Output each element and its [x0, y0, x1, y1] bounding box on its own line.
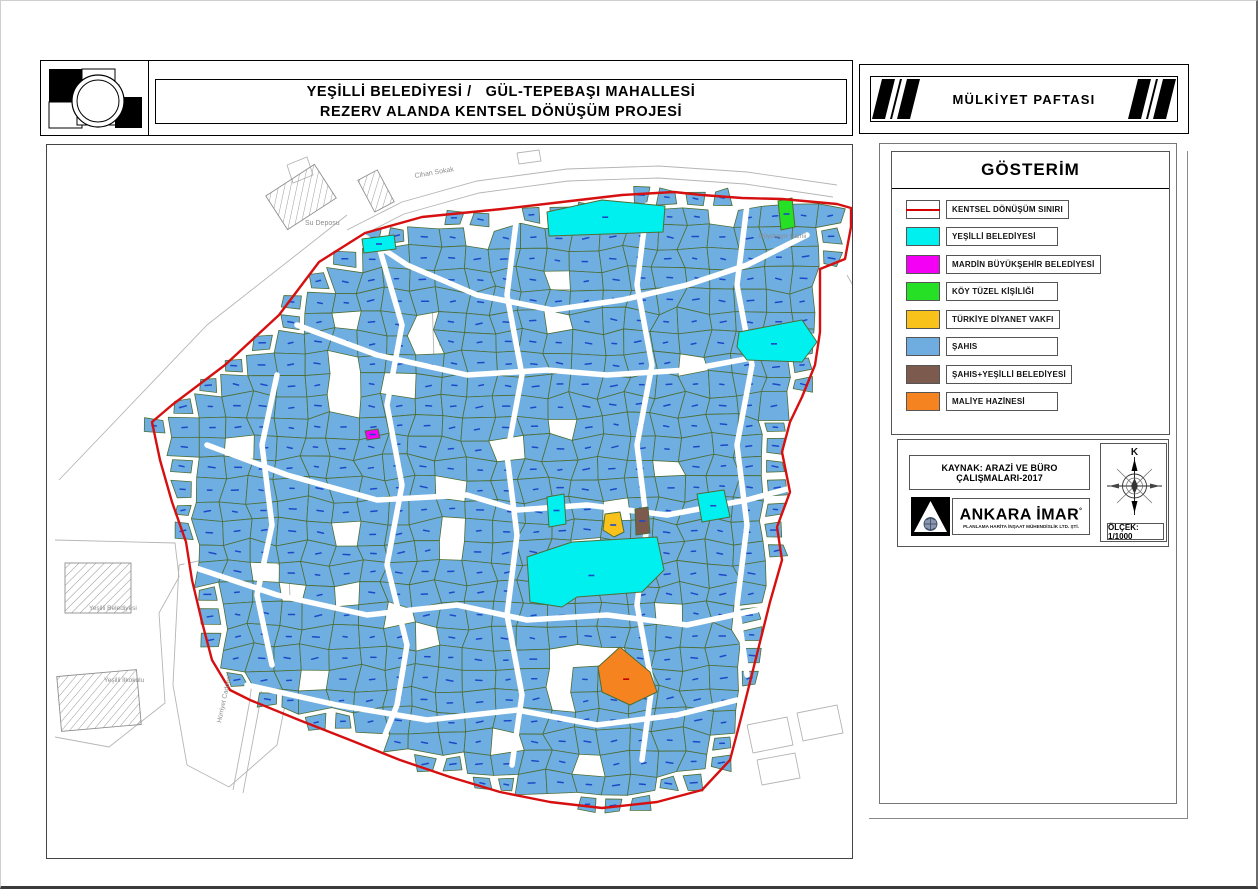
legend-item: YEŞİLLİ BELEDİYESİ: [906, 227, 1169, 247]
company-logo-icon: [911, 497, 950, 536]
source-note: KAYNAK: ARAZİ VE BÜRO ÇALIŞMALARI-2017: [910, 463, 1089, 483]
company-subtitle: PLANLAMA HARİTA İNŞAAT MÜHENDİSLİK LTD. …: [963, 524, 1079, 529]
legend-label-box: ŞAHIS+YEŞİLLİ BELEDİYESİ: [946, 365, 1072, 384]
legend-label-box: MARDİN BÜYÜKŞEHİR BELEDİYESİ: [946, 255, 1101, 274]
legend-line-swatch: [906, 200, 940, 219]
legend-item: TÜRKİYE DİYANET VAKFI: [906, 309, 1169, 329]
legend-label-box: MALİYE HAZİNESİ: [946, 392, 1058, 411]
north-scale-box: K ÖLÇEK: 1/1000: [1100, 443, 1167, 542]
legend-title: GÖSTERİM: [892, 152, 1169, 189]
legend-label: MALİYE HAZİNESİ: [952, 397, 1025, 406]
legend-color-swatch: [906, 227, 940, 246]
municipality-logo-cell: [41, 61, 149, 135]
legend-label-box: KENTSEL DÖNÜŞÜM SINIRI: [946, 200, 1069, 219]
sheet-type-title: MÜLKİYET PAFTASI: [953, 92, 1096, 107]
legend-color-swatch: [906, 337, 940, 356]
legend-label-box: KÖY TÜZEL KİŞİLİĞİ: [946, 282, 1058, 301]
legend-label-box: TÜRKİYE DİYANET VAKFI: [946, 310, 1060, 329]
map-label: Hürriyet Caddesi: [216, 675, 233, 724]
company-name: ANKARA İMAR°: [960, 504, 1083, 523]
legend-color-swatch: [906, 255, 940, 274]
legend-item: ŞAHIS: [906, 337, 1169, 357]
decorative-bars-left-icon: [877, 79, 915, 119]
parcel-cyan: [547, 200, 665, 236]
map-frame: Su DeposuCihan SokakBüyükayır CamiiYeşil…: [46, 144, 853, 859]
legend-label: ŞAHIS+YEŞİLLİ BELEDİYESİ: [952, 370, 1066, 379]
legend-item: KÖY TÜZEL KİŞİLİĞİ: [906, 282, 1169, 302]
legend-color-swatch: [906, 310, 940, 329]
legend-label-box: ŞAHIS: [946, 337, 1058, 356]
map-label: Yeşilli İlkokulu: [104, 675, 145, 684]
legend-color-swatch: [906, 282, 940, 301]
right-title-box: MÜLKİYET PAFTASI: [870, 76, 1178, 122]
map-label: Su Deposu: [305, 220, 340, 227]
map-canvas: Su DeposuCihan SokakBüyükayır CamiiYeşil…: [47, 145, 852, 858]
company-box: ANKARA İMAR° PLANLAMA HARİTA İNŞAAT MÜHE…: [952, 498, 1090, 535]
legend-label: TÜRKİYE DİYANET VAKFI: [952, 315, 1054, 324]
compass-rose-icon: K: [1102, 445, 1167, 521]
legend-label: YEŞİLLİ BELEDİYESİ: [952, 232, 1036, 241]
legend-item: MARDİN BÜYÜKŞEHİR BELEDİYESİ: [906, 254, 1169, 274]
legend-item: KENTSEL DÖNÜŞÜM SINIRI: [906, 199, 1169, 219]
scale-label: ÖLÇEK: 1/1000: [1107, 523, 1164, 540]
map-label: Yeşilli Belediyesi: [89, 605, 137, 612]
north-letter: K: [1131, 447, 1139, 458]
legend-color-swatch: [906, 392, 940, 411]
plan-sheet: YEŞİLLİ BELEDİYESİ / GÜL-TEPEBAŞI MAHALL…: [0, 0, 1258, 889]
legend-panel: GÖSTERİM KENTSEL DÖNÜŞÜM SINIRIYEŞİLLİ B…: [891, 151, 1170, 435]
legend-label: MARDİN BÜYÜKŞEHİR BELEDİYESİ: [952, 260, 1095, 269]
decorative-bars-right-icon: [1133, 79, 1171, 119]
map-label: Büyükayır Camii: [759, 233, 806, 240]
page-title-line2: REZERV ALANDA KENTSEL DÖNÜŞÜM PROJESİ: [320, 102, 682, 122]
legend-color-swatch: [906, 365, 940, 384]
legend-label: ŞAHIS: [952, 342, 977, 351]
municipality-logo-icon: [41, 61, 148, 135]
legend-item: MALİYE HAZİNESİ: [906, 392, 1169, 412]
page-title-line1: YEŞİLLİ BELEDİYESİ / GÜL-TEPEBAŞI MAHALL…: [307, 82, 696, 102]
title-box: YEŞİLLİ BELEDİYESİ / GÜL-TEPEBAŞI MAHALL…: [155, 79, 847, 124]
legend-label: KÖY TÜZEL KİŞİLİĞİ: [952, 287, 1034, 296]
legend-rows: KENTSEL DÖNÜŞÜM SINIRIYEŞİLLİ BELEDİYESİ…: [892, 189, 1169, 412]
map-label: Cihan Sokak: [414, 166, 455, 180]
legend-item: ŞAHIS+YEŞİLLİ BELEDİYESİ: [906, 364, 1169, 384]
source-note-box: KAYNAK: ARAZİ VE BÜRO ÇALIŞMALARI-2017: [909, 455, 1090, 490]
legend-label-box: YEŞİLLİ BELEDİYESİ: [946, 227, 1058, 246]
right-header-band: MÜLKİYET PAFTASI: [859, 64, 1189, 134]
source-block: KAYNAK: ARAZİ VE BÜRO ÇALIŞMALARI-2017 A…: [897, 439, 1169, 547]
legend-label: KENTSEL DÖNÜŞÜM SINIRI: [952, 205, 1063, 214]
header-band: YEŞİLLİ BELEDİYESİ / GÜL-TEPEBAŞI MAHALL…: [40, 60, 853, 136]
